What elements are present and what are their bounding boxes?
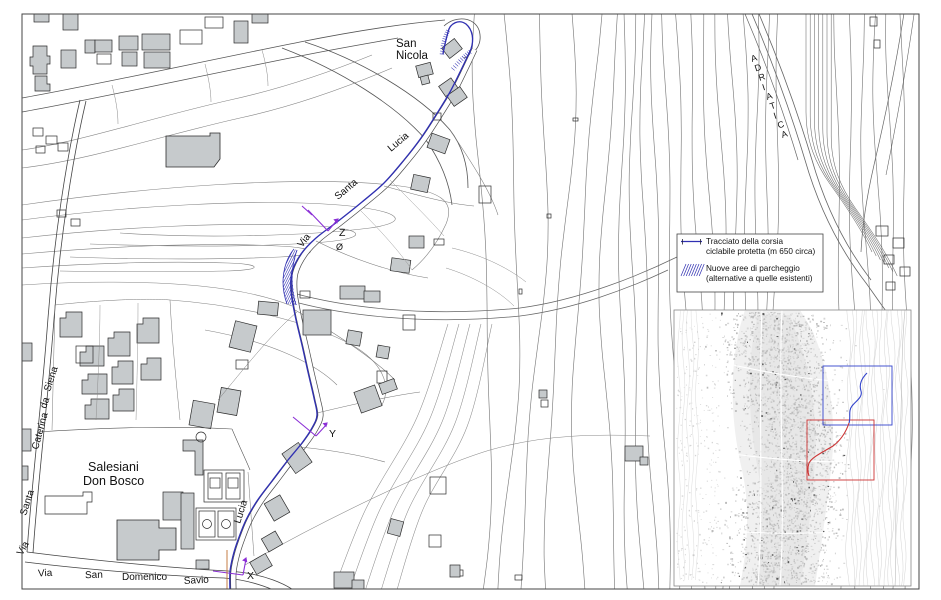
svg-text:San: San	[85, 570, 103, 582]
svg-text:Ø: Ø	[336, 242, 343, 252]
svg-text:San: San	[396, 38, 416, 50]
svg-text:Via: Via	[38, 568, 53, 580]
svg-text:X: X	[247, 570, 254, 582]
svg-text:Z: Z	[339, 227, 346, 239]
svg-text:Nicola: Nicola	[396, 50, 429, 62]
svg-text:Tracciato della corsia: Tracciato della corsia	[706, 237, 783, 246]
svg-text:Domenico: Domenico	[122, 572, 167, 583]
svg-text:Y: Y	[329, 428, 336, 440]
svg-text:Savio: Savio	[184, 575, 210, 587]
svg-text:(alternative a quelle esistent: (alternative a quelle esistenti)	[706, 274, 813, 283]
svg-text:Don Bosco: Don Bosco	[83, 474, 144, 488]
svg-text:ciclabile protetta (m 650 circ: ciclabile protetta (m 650 circa)	[706, 247, 815, 256]
svg-text:Salesiani: Salesiani	[88, 460, 139, 474]
svg-text:Nuove aree di parcheggio: Nuove aree di parcheggio	[706, 264, 800, 273]
